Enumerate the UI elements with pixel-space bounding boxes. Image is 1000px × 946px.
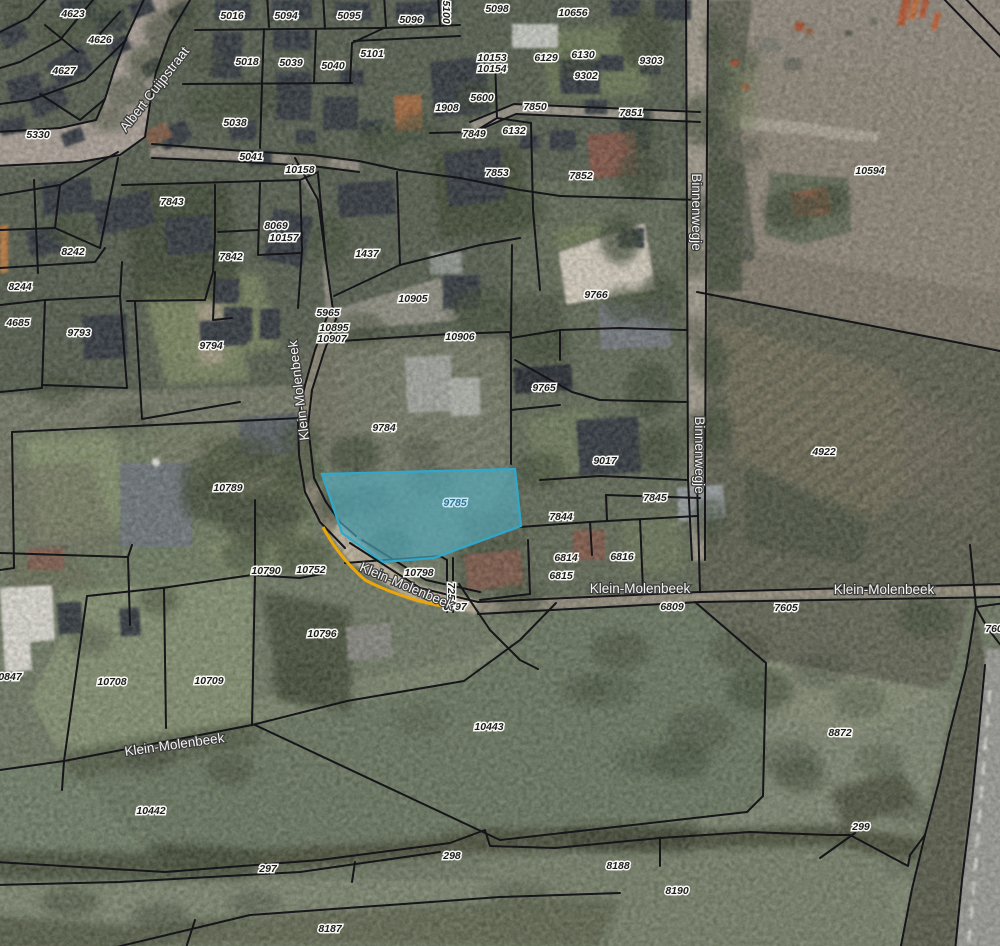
svg-text:298: 298: [442, 850, 461, 862]
svg-text:5094: 5094: [274, 10, 298, 22]
svg-text:9784: 9784: [372, 422, 396, 434]
svg-text:7843: 7843: [160, 196, 184, 208]
svg-text:10798: 10798: [404, 567, 433, 579]
svg-text:5096: 5096: [399, 14, 423, 26]
svg-text:10442: 10442: [136, 805, 165, 817]
svg-text:5039: 5039: [279, 57, 303, 69]
svg-text:10906: 10906: [445, 331, 474, 343]
svg-text:8244: 8244: [8, 281, 32, 293]
svg-text:Klein-Molenbeek: Klein-Molenbeek: [834, 582, 935, 597]
svg-text:Klein-Molenbeek: Klein-Molenbeek: [590, 581, 691, 596]
svg-text:9302: 9302: [574, 70, 598, 82]
svg-text:7851: 7851: [619, 107, 643, 119]
svg-text:10594: 10594: [855, 165, 884, 177]
svg-text:8069: 8069: [264, 220, 288, 232]
svg-text:10905: 10905: [398, 293, 427, 305]
svg-text:10708: 10708: [97, 676, 126, 688]
svg-text:7844: 7844: [549, 511, 573, 523]
svg-text:5016: 5016: [220, 10, 244, 22]
svg-text:8190: 8190: [665, 885, 689, 897]
svg-text:5098: 5098: [485, 3, 509, 15]
svg-text:7850: 7850: [523, 101, 547, 113]
svg-text:6809: 6809: [660, 601, 684, 613]
svg-text:5101: 5101: [360, 48, 384, 60]
svg-text:Binnenwegje: Binnenwegje: [692, 416, 707, 493]
svg-text:299: 299: [851, 821, 870, 833]
svg-text:4627: 4627: [51, 65, 77, 77]
svg-text:9794: 9794: [199, 340, 223, 352]
svg-text:4685: 4685: [5, 317, 30, 329]
svg-text:7605: 7605: [774, 602, 798, 614]
svg-text:6129: 6129: [534, 52, 558, 64]
svg-text:7852: 7852: [569, 170, 593, 182]
svg-text:10158: 10158: [285, 164, 314, 176]
svg-text:8187: 8187: [318, 923, 343, 935]
svg-text:Binnenwegje: Binnenwegje: [689, 173, 704, 250]
svg-text:9303: 9303: [639, 55, 663, 67]
svg-text:10752: 10752: [296, 564, 325, 576]
svg-text:10907: 10907: [317, 333, 347, 345]
svg-text:9766: 9766: [584, 289, 608, 301]
svg-text:6815: 6815: [549, 570, 573, 582]
svg-text:6132: 6132: [502, 125, 526, 137]
svg-text:297: 297: [258, 863, 278, 875]
svg-text:10709: 10709: [194, 675, 223, 687]
svg-text:5100: 5100: [440, 0, 452, 24]
svg-text:10154: 10154: [477, 63, 506, 75]
svg-text:5018: 5018: [235, 56, 259, 68]
svg-text:4922: 4922: [811, 446, 836, 458]
svg-text:8872: 8872: [828, 727, 852, 739]
svg-text:10790: 10790: [251, 565, 280, 577]
svg-text:10789: 10789: [213, 482, 242, 494]
svg-text:4623: 4623: [60, 8, 85, 20]
svg-text:5038: 5038: [223, 117, 247, 129]
svg-text:8242: 8242: [61, 246, 85, 258]
svg-text:7842: 7842: [219, 251, 243, 263]
svg-text:4626: 4626: [87, 34, 112, 46]
svg-text:9785: 9785: [443, 497, 467, 509]
svg-text:7849: 7849: [462, 128, 486, 140]
svg-text:5330: 5330: [26, 129, 50, 141]
svg-text:6816: 6816: [610, 551, 634, 563]
svg-text:6814: 6814: [554, 552, 578, 564]
svg-text:5040: 5040: [321, 60, 345, 72]
svg-text:10443: 10443: [474, 721, 503, 733]
svg-text:5600: 5600: [470, 92, 494, 104]
svg-text:9017: 9017: [593, 455, 618, 467]
svg-text:760: 760: [985, 623, 1000, 635]
svg-text:5965: 5965: [316, 307, 340, 319]
svg-text:0847: 0847: [0, 671, 23, 683]
svg-text:1437: 1437: [355, 248, 380, 260]
svg-text:8188: 8188: [606, 860, 630, 872]
svg-text:9765: 9765: [532, 382, 556, 394]
svg-text:1908: 1908: [435, 102, 459, 114]
svg-text:10157: 10157: [269, 232, 299, 244]
svg-text:6130: 6130: [571, 49, 595, 61]
svg-text:7845: 7845: [643, 492, 667, 504]
svg-text:7853: 7853: [485, 167, 509, 179]
svg-text:5095: 5095: [337, 10, 361, 22]
svg-text:10656: 10656: [558, 7, 587, 19]
svg-text:5041: 5041: [239, 151, 263, 163]
svg-text:9793: 9793: [67, 327, 91, 339]
svg-text:10796: 10796: [307, 628, 336, 640]
